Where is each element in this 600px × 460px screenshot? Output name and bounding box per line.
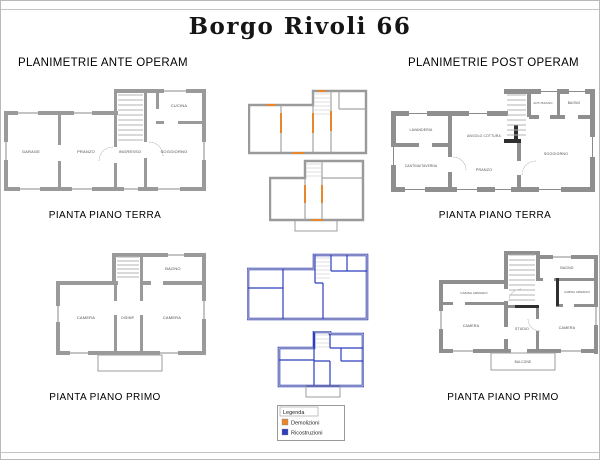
outer-walls [249,91,366,153]
legend-box: Legenda Demolizioni Ricostruzioni [277,405,345,446]
mini-plan-demolitions-ground [248,89,368,155]
room-label-ingresso: INGRESSO [119,149,142,154]
balcony-outline [306,386,340,397]
room-label-bagno: BAGNO [165,266,180,271]
mini-plan-reconstructions-first [270,331,364,405]
room-label-cucina: CUCINA [171,103,188,108]
plan-post-first-floor: CABINA ARMADIO CAMERA STUDIO BAGNO CABIN… [423,249,600,379]
room-label-studio: STUDIO [515,327,529,331]
room-label-cantina-taverna: CANTINA/TAVERNA [405,164,438,168]
balcony-outline [98,355,162,371]
door-openings [453,278,574,353]
room-label-camera-dx: CAMERA [163,315,181,320]
stairs-hatch [509,255,535,300]
room-label-disimpegno: DISIMP. [121,316,135,320]
top-rule-line [1,9,599,10]
room-label-cabina-armadio-sx: CABINA ARMADIO [460,291,488,295]
room-label-soggiorno: SOGGIORNO [544,152,568,156]
room-label-balcone: BALCONE [515,360,532,364]
room-label-lavanderia: LAVANDERIA [410,128,434,132]
outer-walls [279,332,363,386]
sheet-title: Borgo Rivoli 66 [1,13,599,40]
legend-label-ricostruzioni: Ricostruzioni [291,431,322,437]
room-label-angolo-cottura: ANGOLO COTTURA [467,134,501,138]
plan-ante-ground-floor: GARAGE PRANZO INGRESSO SOGGIORNO CUCINA [4,87,206,205]
bottom-rule-line [1,452,599,453]
walls [391,89,595,192]
room-labels: GARAGE PRANZO INGRESSO SOGGIORNO CUCINA [22,103,188,154]
caption-ante-ground: PIANTA PIANO TERRA [4,210,206,221]
balcony-outline [295,220,337,231]
door-openings [57,120,178,163]
section-header-ante-operam: PLANIMETRIE ANTE OPERAM [18,57,188,69]
caption-post-first: PIANTA PIANO PRIMO [401,392,600,403]
room-label-soggiorno: SOGGIORNO [161,149,188,154]
room-label-camera-sx: CAMERA [463,324,480,328]
room-label-bagno: BAGNO [568,101,581,105]
legend-swatch-reconstruction [282,429,288,435]
plan-ante-first-floor: CAMERA DISIMP. CAMERA BAGNO [56,251,208,377]
mini-plan-reconstructions-ground [247,253,369,321]
walls [56,253,206,355]
stairs-hatch [117,257,139,277]
room-label-pranzo: PRANZO [77,149,95,154]
new-wall-accents [504,125,521,143]
door-swing-arcs [453,157,536,175]
legend-label-demolizioni: Demolizioni [291,421,319,427]
room-label-camera-dx: CAMERA [559,326,576,330]
new-wall-accents [515,278,559,308]
outer-walls [248,255,367,319]
legend-title: Legenda [283,410,305,416]
caption-ante-first: PIANTA PIANO PRIMO [4,392,206,403]
windows [391,89,595,192]
room-label-anti-bagno: ANTI BAGNO [533,101,553,105]
section-header-post-operam: PLANIMETRIE POST OPERAM [408,57,579,69]
drawing-sheet: Borgo Rivoli 66 PLANIMETRIE ANTE OPERAM … [0,0,600,460]
room-labels: CAMERA DISIMP. CAMERA BAGNO [77,266,181,320]
room-label-camera-sx: CAMERA [77,315,95,320]
stairs-hatch [118,95,143,140]
room-label-garage: GARAGE [22,149,40,154]
room-label-cabina-armadio-dx: CABINA ARMADIO [564,290,590,294]
room-label-bagno: BAGNO [560,266,573,270]
mini-plan-demolitions-first [269,159,365,235]
outer-walls [270,161,363,220]
windows [56,253,206,355]
room-label-pranzo: PRANZO [476,168,492,172]
plan-post-ground-floor: LAVANDERIA CANTINA/TAVERNA ANGOLO COTTUR… [391,87,599,205]
legend-swatch-demolition [282,419,288,425]
door-openings [113,281,163,315]
caption-post-ground: PIANTA PIANO TERRA [391,210,599,221]
